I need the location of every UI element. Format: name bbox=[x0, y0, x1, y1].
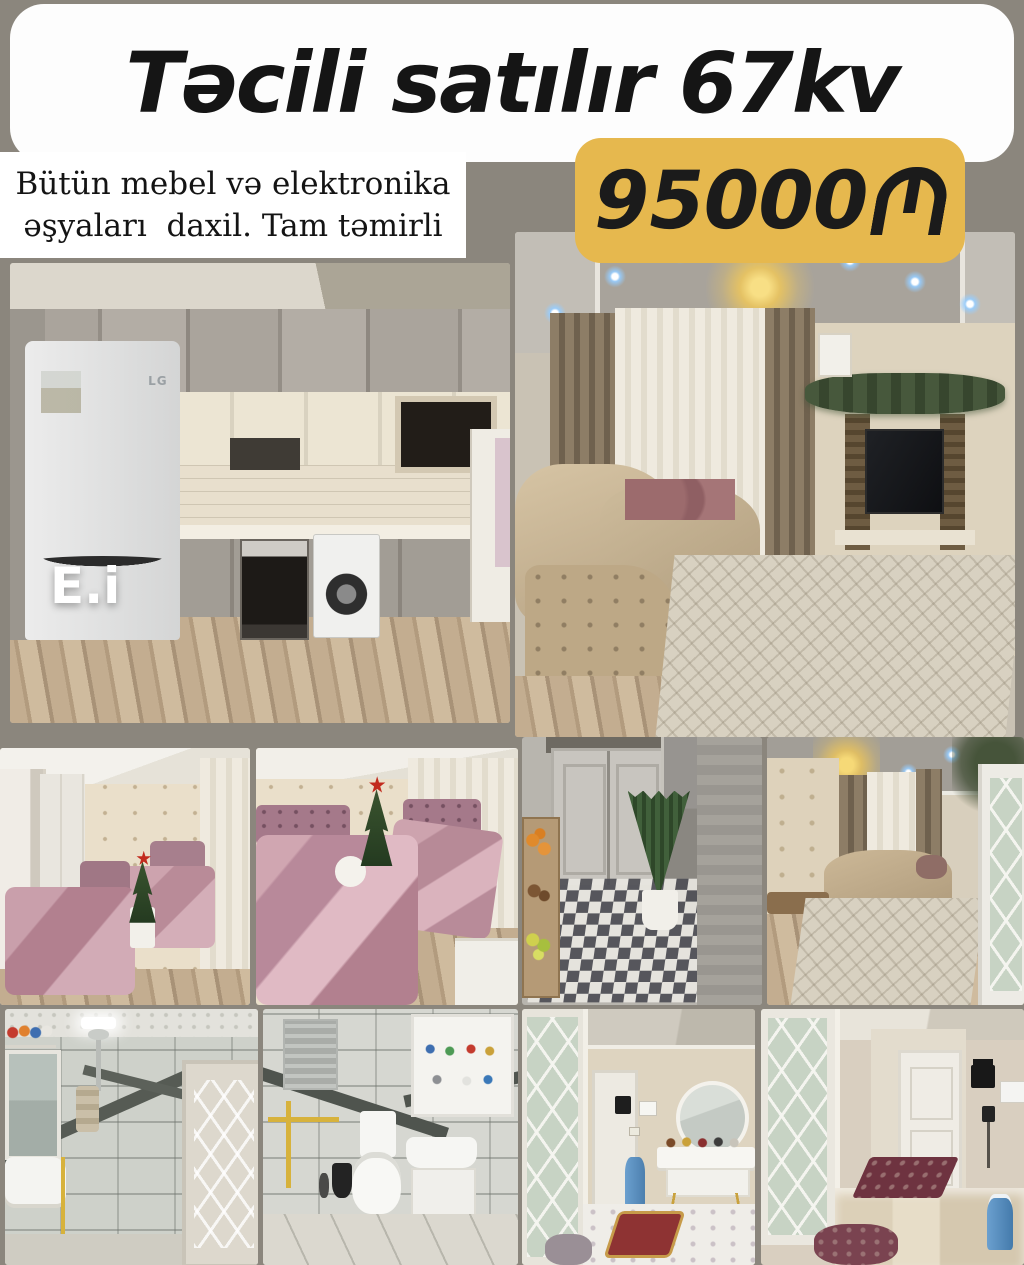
dark-red-mat bbox=[814, 1224, 898, 1265]
shower-head bbox=[88, 1029, 108, 1039]
router-box bbox=[615, 1096, 631, 1114]
photo-sitting-room bbox=[767, 737, 1024, 1005]
manat-symbol-stem bbox=[903, 177, 921, 213]
dark-red-rug bbox=[852, 1157, 960, 1198]
price-value: 95000 bbox=[586, 154, 876, 247]
batha-shelf-bottles bbox=[5, 1014, 56, 1048]
batha-door bbox=[182, 1060, 258, 1265]
price-badge: 95000 bbox=[575, 138, 965, 263]
description-line-1: Bütün mebel və elektronika bbox=[16, 163, 451, 205]
oranges bbox=[524, 823, 553, 866]
black-wall-phone bbox=[982, 1106, 995, 1121]
photo-kitchen: LG E.i bbox=[10, 263, 510, 723]
corridor-lattice-door bbox=[761, 1009, 840, 1245]
tv-screen bbox=[865, 429, 944, 514]
shower-bar bbox=[96, 1035, 101, 1091]
batha-floor bbox=[5, 1234, 182, 1265]
fridge-brand-label: LG bbox=[148, 374, 168, 388]
ad-collage: Təcili satılır 67kv Bütün mebel və elekt… bbox=[0, 0, 1024, 1265]
batha-mirror bbox=[5, 1050, 61, 1160]
description-line-2: əşyaları daxil. Tam təmirli bbox=[23, 205, 442, 247]
range-hood bbox=[230, 438, 300, 470]
bed1-cover bbox=[5, 887, 135, 995]
water-bottle-corridor bbox=[987, 1198, 1013, 1249]
bathb-sink bbox=[406, 1137, 477, 1168]
door-gap bbox=[607, 751, 610, 885]
towel-radiator bbox=[283, 1019, 338, 1090]
kitchen-backsplash bbox=[160, 465, 510, 529]
sitting-rug bbox=[790, 898, 985, 1005]
kitchen-door-glass bbox=[495, 438, 510, 567]
watermark-text: E.i bbox=[50, 557, 120, 615]
brown-fruit bbox=[524, 876, 553, 908]
oven bbox=[240, 539, 309, 640]
photo-living-room bbox=[515, 232, 1015, 737]
water-bottle-entry bbox=[625, 1157, 646, 1208]
tree-star-a bbox=[136, 851, 151, 866]
batha-door-lattice bbox=[194, 1080, 255, 1248]
bedb-bed1-cover bbox=[256, 835, 418, 1005]
white-desk-corner bbox=[455, 938, 518, 1005]
white-wall-panel bbox=[1000, 1081, 1024, 1103]
toilet-tank bbox=[360, 1111, 396, 1157]
sitting-french-door bbox=[978, 764, 1024, 1005]
wall-picture bbox=[818, 333, 852, 377]
console-cosmetics bbox=[662, 1132, 751, 1150]
yellow-pipe-b-horizontal bbox=[268, 1117, 339, 1122]
photo-entrance-hall bbox=[522, 1009, 755, 1265]
photo-hallway-plants bbox=[522, 737, 762, 1005]
intercom-panel bbox=[639, 1101, 657, 1116]
cabinet-bottles bbox=[420, 1032, 505, 1100]
console-table-top bbox=[657, 1147, 755, 1167]
sitting-sofa-cushion bbox=[916, 855, 947, 879]
ad-title: Təcili satılır 67kv bbox=[125, 34, 898, 132]
photo-bedroom-a bbox=[0, 748, 250, 1005]
livingroom-rug bbox=[655, 555, 1015, 737]
photo-bathroom-b bbox=[263, 1009, 518, 1265]
sitting-door-glass bbox=[990, 778, 1022, 990]
photo-bedroom-b bbox=[256, 748, 518, 1005]
door-panel-left bbox=[563, 764, 607, 875]
entry-door-glass bbox=[527, 1017, 578, 1258]
photo-bathroom-a bbox=[5, 1009, 258, 1265]
hanging-wire bbox=[987, 1122, 990, 1168]
corridor-door-panel-top bbox=[910, 1067, 953, 1120]
garland bbox=[805, 373, 1005, 413]
round-side-table bbox=[335, 856, 366, 887]
dark-mat bbox=[545, 1234, 592, 1265]
toilet-bowl bbox=[352, 1152, 400, 1213]
corridor-door-glass bbox=[768, 1018, 827, 1235]
washing-machine bbox=[313, 534, 380, 637]
bathb-floor bbox=[263, 1214, 518, 1265]
toilet-brush bbox=[319, 1173, 329, 1199]
sofa-cushions bbox=[625, 479, 735, 519]
entry-french-door bbox=[522, 1009, 588, 1265]
batha-hanging-items bbox=[76, 1086, 99, 1132]
plant-pot bbox=[642, 890, 678, 930]
batha-sink bbox=[5, 1157, 66, 1203]
tv-shelf bbox=[835, 530, 975, 545]
hall-right-wall bbox=[697, 737, 762, 1005]
batha-led-light bbox=[81, 1017, 116, 1030]
photo-corridor bbox=[761, 1009, 1024, 1265]
description-box: Bütün mebel və elektronika əşyaları daxi… bbox=[0, 152, 466, 258]
wall-socket bbox=[629, 1127, 640, 1137]
wifi-router bbox=[971, 1065, 995, 1088]
fridge-stickers bbox=[41, 371, 81, 413]
trash-bin bbox=[332, 1163, 352, 1199]
manat-symbol bbox=[870, 167, 952, 235]
yellow-pipe-b-vertical bbox=[286, 1101, 291, 1188]
entry-ceiling bbox=[583, 1009, 755, 1049]
lemons-apples bbox=[524, 925, 553, 963]
mirror-cabinet bbox=[411, 1014, 514, 1117]
